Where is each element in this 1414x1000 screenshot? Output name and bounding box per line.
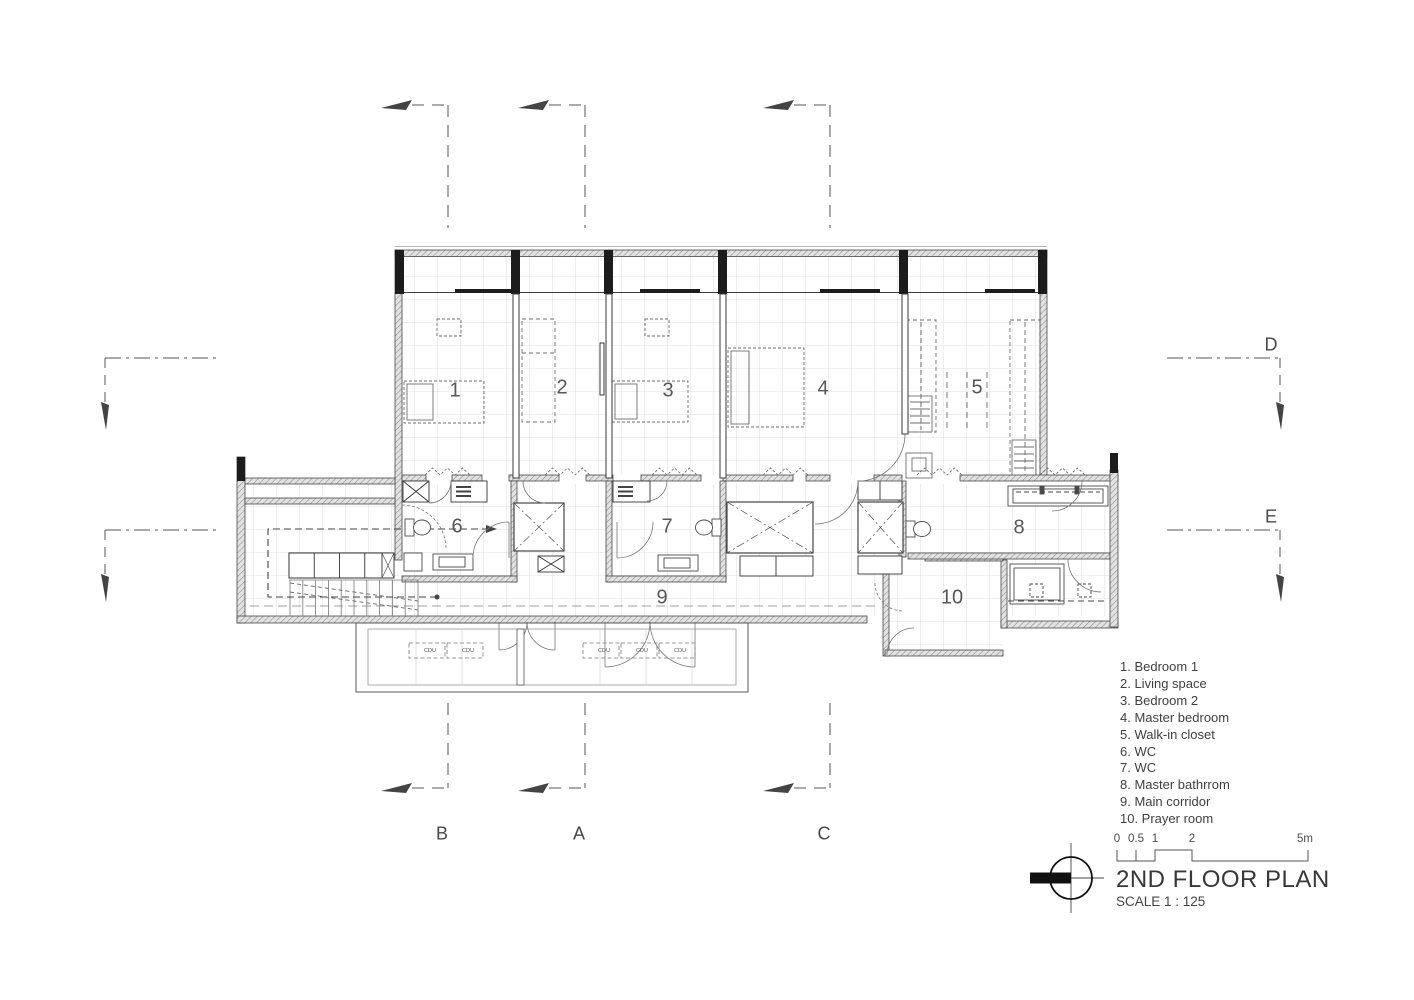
north-arrow-icon [1030,843,1104,913]
room-label-walkin-closet: 5 [971,377,982,400]
scale-bar-label-1: 1 [1152,833,1158,845]
legend-item: 9. Main corridor [1120,794,1230,811]
floor-plan-sheet: 1 2 3 4 5 6 7 8 9 10 CDU CDU CDU CDU CDU… [0,0,1414,1000]
room-label-prayer-room: 10 [941,587,963,610]
scale-bar-label-05: 0.5 [1128,833,1144,845]
room-label-master-bedroom: 4 [817,378,828,401]
legend-item: 5. Walk-in closet [1120,727,1230,744]
grid-letter-C: C [818,824,831,845]
room-label-wc7: 7 [661,516,672,539]
room-label-main-corridor: 9 [656,587,667,610]
scale-bar-label-0: 0 [1114,833,1120,845]
scale-bar-label-5m: 5m [1297,833,1313,845]
cdu-label: CDU [462,648,474,654]
legend-item: 10. Prayer room [1120,811,1230,828]
legend-item: 8. Master bathrrom [1120,777,1230,794]
scale-bar-label-2: 2 [1189,833,1195,845]
grid-letter-D: D [1265,335,1278,356]
cdu-label: CDU [636,648,648,654]
cdu-label: CDU [598,648,610,654]
grid-letter-A: A [573,824,585,845]
room-label-bedroom2: 3 [662,380,673,403]
legend-item: 1. Bedroom 1 [1120,659,1230,676]
legend-item: 3. Bedroom 2 [1120,693,1230,710]
room-label-master-bath: 8 [1013,517,1024,540]
page-title: 2ND FLOOR PLAN [1116,866,1330,894]
legend-item: 7. WC [1120,760,1230,777]
legend-item: 4. Master bedroom [1120,710,1230,727]
legend-item: 2. Living space [1120,676,1230,693]
balcony [356,623,748,692]
room-legend: 1. Bedroom 1 2. Living space 3. Bedroom … [1120,659,1230,828]
scale-bar [1117,850,1308,861]
drawing-scale-text: SCALE 1 : 125 [1116,894,1205,909]
floor-tile-grid [245,256,1110,650]
floor-plan-linework [0,0,1414,1000]
room-label-wc6: 6 [451,516,462,539]
grid-letter-B: B [436,824,448,845]
legend-item: 6. WC [1120,744,1230,761]
room-label-bedroom1: 1 [449,380,460,403]
cdu-label: CDU [424,648,436,654]
grid-letter-E: E [1265,507,1277,528]
cdu-label: CDU [674,648,686,654]
room-label-living-space: 2 [556,377,567,400]
